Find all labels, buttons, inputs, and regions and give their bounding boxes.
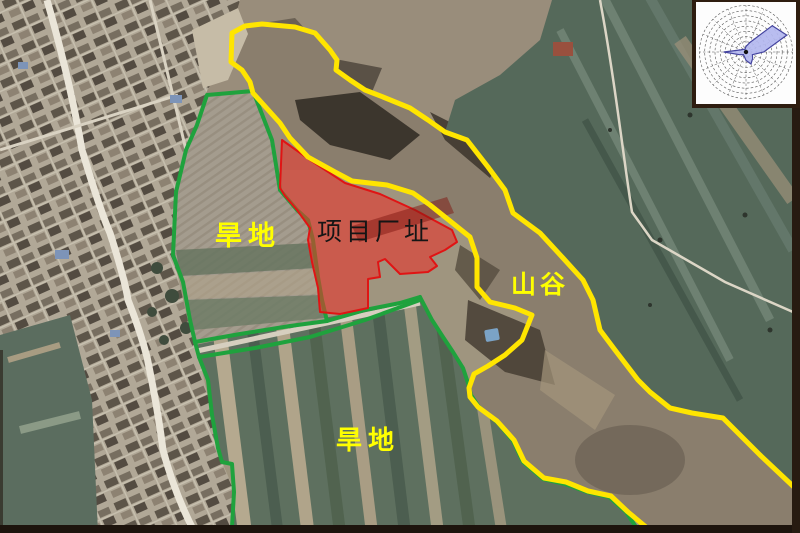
satellite-map xyxy=(0,0,800,533)
left-frame-sliver xyxy=(0,350,3,525)
farmhouse xyxy=(553,42,573,56)
map-figure: 旱地 项目厂址 山谷 旱地 xyxy=(0,0,800,533)
wind-rose-center-dot xyxy=(744,50,748,54)
bottom-frame-bar xyxy=(0,525,800,533)
wind-rose xyxy=(694,0,798,106)
pond xyxy=(484,328,500,342)
